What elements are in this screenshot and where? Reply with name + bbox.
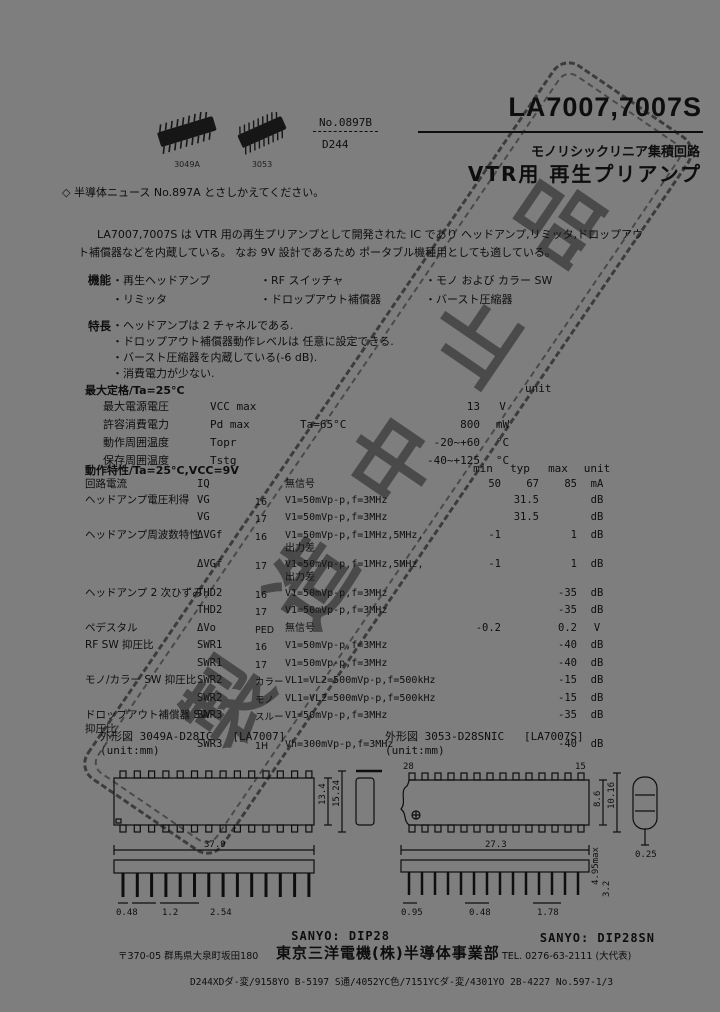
op-characteristics-rows: 回路電流 IQ 無信号 50 67 85 mA ヘッドアンプ電圧利得 VG 16… bbox=[85, 478, 665, 754]
outline-right-caption: 外形図 3053-D28SNIC [LA7007S] bbox=[385, 728, 685, 744]
param-min bbox=[465, 657, 501, 673]
max-ratings-table: 最大定格/Ta=25°C unit 最大電源電圧 VCC max 13 V 許容… bbox=[85, 382, 645, 470]
footer-company: 東京三洋電機(株)半導体事業部 bbox=[276, 942, 500, 963]
param-pin: 17 bbox=[255, 558, 285, 585]
param-pin: 16 bbox=[255, 529, 285, 556]
param-condition: 無信号 bbox=[285, 478, 465, 492]
photo-label: 3049A bbox=[148, 160, 226, 169]
param-unit: mA bbox=[577, 478, 617, 492]
param-pin: 16 bbox=[255, 494, 285, 510]
dim-lead-width: 0.48 bbox=[116, 908, 138, 918]
param-max: -15 bbox=[539, 692, 577, 708]
rating-symbol: VCC max bbox=[210, 398, 300, 416]
param-max: -40 bbox=[539, 657, 577, 673]
param-unit: dB bbox=[577, 511, 617, 527]
pin-15-label: 15 bbox=[575, 762, 586, 772]
col-typ: typ bbox=[501, 462, 539, 478]
pin-28-label: 28 bbox=[403, 762, 414, 772]
rating-name: 許容消費電力 bbox=[85, 416, 210, 434]
param-pin: 16 bbox=[255, 639, 285, 655]
dim-p1: 0.95 bbox=[401, 908, 423, 918]
rating-value: 800 bbox=[395, 416, 480, 434]
feature-item: ・ヘッドアンプは 2 チャネルである. bbox=[112, 318, 394, 334]
param-max bbox=[539, 494, 577, 510]
dim-lead-thickness: 0.25 bbox=[635, 850, 657, 860]
param-pin bbox=[255, 478, 285, 492]
dim-height: 4.95max bbox=[591, 846, 601, 885]
param-min bbox=[465, 587, 501, 603]
param-symbol: ΔVGf bbox=[197, 529, 255, 556]
param-min bbox=[465, 674, 501, 690]
param-unit: dB bbox=[577, 657, 617, 673]
outline-right: 外形図 3053-D28SNIC [LA7007S] (unit:mm) bbox=[385, 728, 685, 945]
op-char-row: ヘッドアンプ 2 次ひずみ THD2 16 V1=50mVp-p,f=3MHz … bbox=[85, 587, 665, 603]
param-condition: VL1=VL2=500mVp-p,f=500kHz bbox=[285, 692, 465, 708]
param-unit: dB bbox=[577, 639, 617, 655]
param-typ bbox=[501, 558, 539, 585]
outline-left-caption: 外形図 3049A-D28IC [LA7007] bbox=[100, 728, 390, 744]
features-list: ・ヘッドアンプは 2 チャネルである. ・ドロップアウト補償器動作レベルは 任意… bbox=[112, 318, 394, 382]
param-max bbox=[539, 511, 577, 527]
param-typ bbox=[501, 657, 539, 673]
param-typ bbox=[501, 692, 539, 708]
param-max: 1 bbox=[539, 529, 577, 556]
feature-item: ・バースト圧縮器を内蔵している(-6 dB). bbox=[112, 350, 394, 366]
rating-symbol: Pd max bbox=[210, 416, 300, 434]
param-min: -0.2 bbox=[465, 622, 501, 638]
rating-symbol: Topr bbox=[210, 434, 300, 452]
dim-body-width: 13.4 bbox=[318, 783, 328, 805]
doc-code: D244 bbox=[322, 138, 349, 151]
param-min bbox=[465, 511, 501, 527]
param-min bbox=[465, 604, 501, 620]
param-max: -35 bbox=[539, 587, 577, 603]
datasheet-page: LA7007,7007S モノリシックリニア集積回路 VTR用 再生プリアンプ … bbox=[0, 0, 720, 1012]
product-subtitle: VTR用 再生プリアンプ bbox=[468, 158, 702, 187]
param-name: ヘッドアンプ 2 次ひずみ bbox=[85, 587, 197, 603]
op-characteristics-header: 動作特性/Ta=25°C,VCC=9V min typ max unit bbox=[85, 462, 665, 478]
functions-row: ・再生ヘッドアンプ ・RF スイッチャ ・モノ および カラー SW bbox=[88, 272, 648, 291]
param-unit: dB bbox=[577, 529, 617, 556]
param-min bbox=[465, 692, 501, 708]
ic-photo-dip28sn: 3053 bbox=[228, 112, 296, 169]
op-characteristics-title: 動作特性/Ta=25°C,VCC=9V bbox=[85, 462, 465, 478]
ic-photo-dip28-image bbox=[148, 112, 226, 156]
title-rule bbox=[418, 131, 703, 133]
param-condition: 無信号 bbox=[285, 622, 465, 638]
param-name bbox=[85, 604, 197, 620]
param-symbol: SWR2 bbox=[197, 674, 255, 690]
param-pin: 16 bbox=[255, 587, 285, 603]
rating-condition bbox=[300, 434, 395, 452]
param-typ bbox=[501, 529, 539, 556]
outline-right-drawing: 28 15 27.3 8.6 10.16 0.25 4.95max 3.2 0.… bbox=[385, 757, 685, 927]
param-unit: dB bbox=[577, 604, 617, 620]
function-item: ・ドロップアウト補償器 bbox=[260, 291, 381, 307]
param-condition: V1=50mVp-p,f=3MHz bbox=[285, 511, 465, 527]
intro-line-1: LA7007,7007S は VTR 用の再生プリアンプとして開発された IC … bbox=[97, 226, 643, 242]
param-unit: dB bbox=[577, 494, 617, 510]
dim-row-width: 15.24 bbox=[332, 780, 342, 807]
param-typ bbox=[501, 622, 539, 638]
op-char-row: ヘッドアンプ電圧利得 VG 16 V1=50mVp-p,f=3MHz 31.5 … bbox=[85, 494, 665, 510]
param-min bbox=[465, 639, 501, 655]
param-name: ヘッドアンプ電圧利得 bbox=[85, 494, 197, 510]
param-typ: 67 bbox=[501, 478, 539, 492]
functions-row: ・リミッタ ・ドロップアウト補償器 ・バースト圧縮器 bbox=[88, 291, 648, 310]
rating-unit: V bbox=[480, 398, 525, 416]
max-ratings-title: 最大定格/Ta=25°C bbox=[85, 384, 185, 397]
param-name: RF SW 抑圧比 bbox=[85, 639, 197, 655]
param-unit: V bbox=[577, 622, 617, 638]
param-name: モノ/カラー SW 抑圧比 bbox=[85, 674, 197, 690]
max-rating-row: 最大電源電圧 VCC max 13 V bbox=[85, 398, 645, 416]
doc-number: No.0897B bbox=[313, 116, 378, 132]
op-char-row: SWR1 17 V1=50mVp-p,f=3MHz -40 dB bbox=[85, 657, 665, 673]
param-max: -35 bbox=[539, 604, 577, 620]
param-condition: V1=50mVp-p,f=3MHz bbox=[285, 494, 465, 510]
op-char-row: ΔVGf 17 V1=50mVp-p,f=1MHz,5MHz,出力差 -1 1 … bbox=[85, 558, 665, 585]
function-item: ・バースト圧縮器 bbox=[425, 291, 512, 307]
rating-condition: Ta=65°C bbox=[300, 416, 395, 434]
param-symbol: IQ bbox=[197, 478, 255, 492]
param-unit: dB bbox=[577, 674, 617, 690]
param-symbol: SWR2 bbox=[197, 692, 255, 708]
param-max: -15 bbox=[539, 674, 577, 690]
param-condition: V1=50mVp-p,f=1MHz,5MHz,出力差 bbox=[285, 558, 465, 585]
rating-unit: mW bbox=[480, 416, 525, 434]
param-name: ペデスタル bbox=[85, 622, 197, 638]
param-symbol: SWR1 bbox=[197, 657, 255, 673]
dim-standoff: 3.2 bbox=[602, 881, 612, 897]
feature-item: ・消費電力が少ない. bbox=[112, 366, 394, 382]
outline-left: 外形図 3049A-D28IC [LA7007] (unit:mm) bbox=[100, 728, 390, 943]
max-ratings-header: 最大定格/Ta=25°C unit bbox=[85, 382, 645, 398]
param-condition: V1=50mVp-p,f=1MHz,5MHz,出力差 bbox=[285, 529, 465, 556]
param-name bbox=[85, 657, 197, 673]
param-typ: 31.5 bbox=[501, 494, 539, 510]
param-max: 1 bbox=[539, 558, 577, 585]
op-characteristics-table: 動作特性/Ta=25°C,VCC=9V min typ max unit 回路電… bbox=[85, 462, 665, 756]
rating-name: 最大電源電圧 bbox=[85, 398, 210, 416]
function-item: ・リミッタ bbox=[112, 291, 167, 307]
col-unit: unit bbox=[577, 462, 617, 478]
param-min: -1 bbox=[465, 529, 501, 556]
param-unit: dB bbox=[577, 558, 617, 585]
param-pin: カラー bbox=[255, 674, 285, 690]
part-number-title: LA7007,7007S bbox=[508, 92, 702, 123]
param-typ bbox=[501, 587, 539, 603]
param-symbol: VG bbox=[197, 511, 255, 527]
dim-length: 37.9 bbox=[204, 840, 226, 850]
photo-label: 3053 bbox=[228, 160, 296, 169]
param-symbol: SWR1 bbox=[197, 639, 255, 655]
dim-body-width: 8.6 bbox=[593, 791, 603, 807]
dim-row-width: 10.16 bbox=[607, 782, 617, 809]
features-label: 特長 bbox=[88, 318, 111, 334]
param-max: 0.2 bbox=[539, 622, 577, 638]
replacement-note: ◇ 半導体ニュース No.897A とさしかえてください。 bbox=[62, 184, 324, 200]
dim-length: 27.3 bbox=[485, 840, 507, 850]
footer-address: 〒370-05 群馬県大泉町坂田180 bbox=[118, 948, 258, 962]
op-char-row: RF SW 抑圧比 SWR1 16 V1=50mVp-p,f=3MHz -40 … bbox=[85, 639, 665, 655]
ic-photo-dip28: 3049A bbox=[148, 112, 226, 169]
param-max: 85 bbox=[539, 478, 577, 492]
param-symbol: THD2 bbox=[197, 587, 255, 603]
function-item: ・モノ および カラー SW bbox=[425, 272, 552, 288]
param-condition: V1=50mVp-p,f=3MHz bbox=[285, 604, 465, 620]
max-ratings-unit-label: unit bbox=[525, 382, 552, 395]
max-rating-row: 動作周囲温度 Topr -20~+60 °C bbox=[85, 434, 645, 452]
param-name: 回路電流 bbox=[85, 478, 197, 492]
param-unit: dB bbox=[577, 692, 617, 708]
max-rating-row: 許容消費電力 Pd max Ta=65°C 800 mW bbox=[85, 416, 645, 434]
param-name: ヘッドアンプ周波数特性 bbox=[85, 529, 197, 556]
function-item: ・再生ヘッドアンプ bbox=[112, 272, 210, 288]
param-name bbox=[85, 558, 197, 585]
param-pin: PED bbox=[255, 622, 285, 638]
param-symbol: ΔVGf bbox=[197, 558, 255, 585]
param-name bbox=[85, 511, 197, 527]
outline-left-unit: (unit:mm) bbox=[100, 744, 390, 757]
param-symbol: VG bbox=[197, 494, 255, 510]
op-char-row: SWR2 モノ VL1=VL2=500mVp-p,f=500kHz -15 dB bbox=[85, 692, 665, 708]
function-item: ・RF スイッチャ bbox=[260, 272, 343, 288]
param-typ bbox=[501, 639, 539, 655]
param-unit: dB bbox=[577, 587, 617, 603]
rating-value: -20~+60 bbox=[395, 434, 480, 452]
op-char-row: モノ/カラー SW 抑圧比 SWR2 カラー VL1=VL2=500mVp-p,… bbox=[85, 674, 665, 690]
intro-line-2: ト補償器などを内蔵している。 なお 9V 設計であるため ポータブル機種用として… bbox=[78, 244, 556, 260]
param-symbol: ΔVo bbox=[197, 622, 255, 638]
rating-value: 13 bbox=[395, 398, 480, 416]
param-typ bbox=[501, 604, 539, 620]
max-ratings-rows: 最大電源電圧 VCC max 13 V 許容消費電力 Pd max Ta=65°… bbox=[85, 398, 645, 470]
param-name bbox=[85, 692, 197, 708]
op-char-row: ヘッドアンプ周波数特性 ΔVGf 16 V1=50mVp-p,f=1MHz,5M… bbox=[85, 529, 665, 556]
col-max: max bbox=[539, 462, 577, 478]
op-char-row: ペデスタル ΔVo PED 無信号 -0.2 0.2 V bbox=[85, 622, 665, 638]
outline-left-drawing: 37.9 0.48 1.2 2.54 13.4 15.24 bbox=[100, 757, 390, 925]
outline-left-brand: SANYO: DIP28 bbox=[100, 929, 390, 943]
op-char-row: THD2 17 V1=50mVp-p,f=3MHz -35 dB bbox=[85, 604, 665, 620]
rating-name: 動作周囲温度 bbox=[85, 434, 210, 452]
dim-lead-width: 0.48 bbox=[469, 908, 491, 918]
dim-pitch: 2.54 bbox=[210, 908, 232, 918]
rating-unit: °C bbox=[480, 434, 525, 452]
dim-p3: 1.78 bbox=[537, 908, 559, 918]
dim-lead-offset: 1.2 bbox=[162, 908, 178, 918]
param-condition: V1=50mVp-p,f=3MHz bbox=[285, 657, 465, 673]
ic-photo-dip28sn-image bbox=[228, 112, 296, 156]
footer-tel: TEL. 0276-63-2111 (大代表) bbox=[502, 948, 631, 962]
param-typ bbox=[501, 674, 539, 690]
col-min: min bbox=[465, 462, 501, 478]
param-min: -1 bbox=[465, 558, 501, 585]
op-char-row: 回路電流 IQ 無信号 50 67 85 mA bbox=[85, 478, 665, 492]
param-pin: 17 bbox=[255, 657, 285, 673]
param-max: -40 bbox=[539, 639, 577, 655]
op-char-row: VG 17 V1=50mVp-p,f=3MHz 31.5 dB bbox=[85, 511, 665, 527]
param-condition: VL1=VL2=500mVp-p,f=500kHz bbox=[285, 674, 465, 690]
param-min: 50 bbox=[465, 478, 501, 492]
param-pin: モノ bbox=[255, 692, 285, 708]
param-typ: 31.5 bbox=[501, 511, 539, 527]
footer-codes: D244XDダ-変/9158YO B-5197 S通/4052YC色/7151Y… bbox=[190, 974, 613, 988]
param-min bbox=[465, 494, 501, 510]
functions-list: ・再生ヘッドアンプ ・RF スイッチャ ・モノ および カラー SW ・リミッタ… bbox=[88, 272, 648, 310]
param-condition: V1=50mVp-p,f=3MHz bbox=[285, 639, 465, 655]
rating-condition bbox=[300, 398, 395, 416]
outline-right-unit: (unit:mm) bbox=[385, 744, 685, 757]
param-symbol: THD2 bbox=[197, 604, 255, 620]
feature-item: ・ドロップアウト補償器動作レベルは 任意に設定できる. bbox=[112, 334, 394, 350]
param-pin: 17 bbox=[255, 511, 285, 527]
param-condition: V1=50mVp-p,f=3MHz bbox=[285, 587, 465, 603]
param-pin: 17 bbox=[255, 604, 285, 620]
